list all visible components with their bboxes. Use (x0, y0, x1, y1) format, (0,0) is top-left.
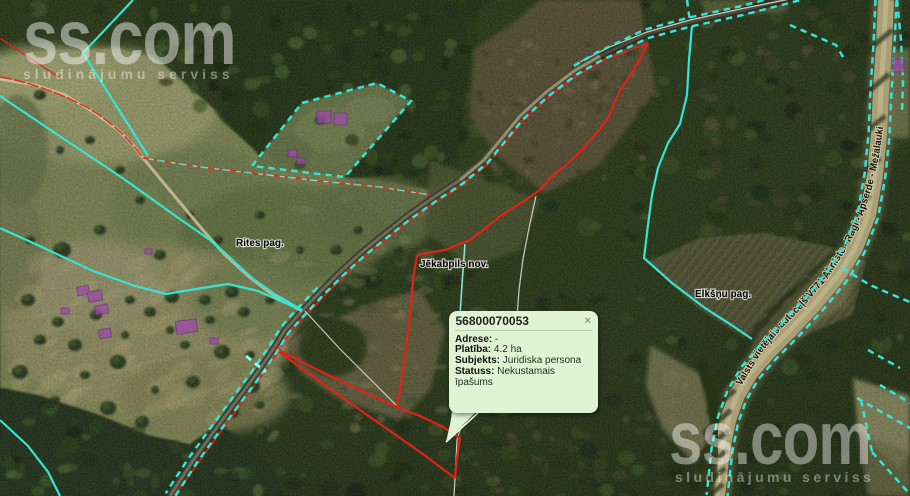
svg-text:Rites pag.: Rites pag. (236, 238, 284, 249)
svg-text:Jēkabpils nov.: Jēkabpils nov. (420, 259, 488, 270)
svg-text:Elkšņu pag.: Elkšņu pag. (695, 289, 751, 300)
